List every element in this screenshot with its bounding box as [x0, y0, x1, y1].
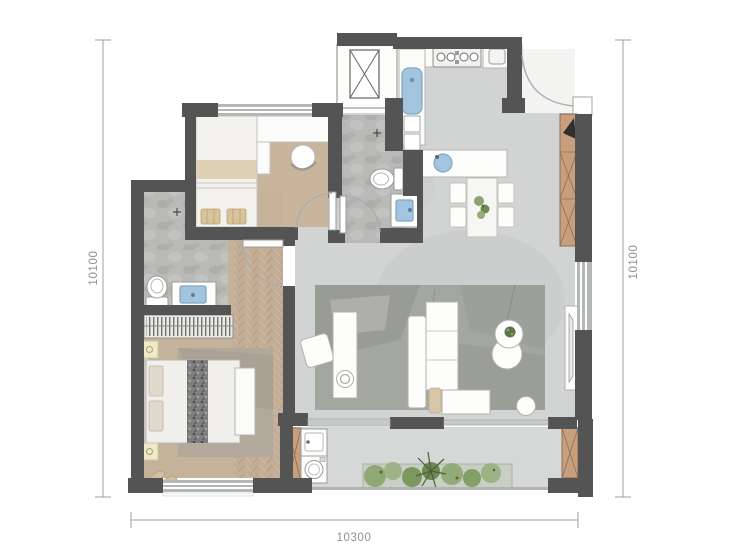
desk-return: [257, 142, 270, 174]
window-sill: [163, 493, 253, 496]
wall-left: [131, 180, 144, 493]
bath-shelf: [404, 116, 420, 132]
wall: [548, 478, 593, 493]
wall: [278, 413, 308, 426]
tv-screen: [569, 314, 573, 382]
sofa-pillow: [429, 388, 441, 413]
desk: [257, 116, 335, 142]
wall: [507, 49, 522, 99]
wall: [393, 37, 522, 49]
vanity-sink: [391, 194, 418, 227]
wall: [283, 286, 295, 416]
master-bed: [144, 356, 255, 446]
guest-bath-door-leaf: [340, 196, 346, 233]
wall: [328, 113, 342, 198]
wall-right: [575, 330, 592, 420]
wall: [253, 478, 312, 493]
single-bed: [196, 116, 257, 227]
wall: [128, 478, 163, 493]
kitchen-floor: [425, 67, 507, 150]
window-north: [218, 104, 312, 116]
dining-chair: [450, 183, 466, 203]
window-east: [577, 262, 592, 330]
bed-blanket: [196, 160, 257, 179]
living-room: [300, 285, 586, 416]
window-south: [163, 480, 253, 492]
pillow: [149, 401, 163, 431]
wall: [548, 417, 577, 429]
bedroom2-door-leaf: [329, 192, 336, 230]
island-faucet: [435, 155, 439, 159]
pillow: [149, 366, 163, 396]
toilet: [370, 168, 403, 190]
wall: [137, 305, 231, 315]
wall: [380, 228, 423, 243]
kitchen-island: [420, 150, 507, 177]
wall-niche: [573, 97, 592, 115]
wall: [283, 230, 295, 246]
bath-shelf: [404, 134, 420, 150]
wall: [337, 33, 397, 46]
table-plant: [505, 327, 516, 338]
pillow: [201, 209, 220, 224]
dim-label-bottom: 10300: [337, 532, 372, 544]
wall: [502, 98, 525, 113]
balcony-slider-sill: [308, 419, 390, 426]
coffee-tables: [492, 320, 523, 369]
bed-runner: [187, 360, 208, 443]
wall-right: [575, 114, 592, 262]
pouf: [517, 397, 536, 416]
dining-chair: [450, 207, 466, 227]
master-vanity: [172, 282, 216, 307]
wall: [185, 103, 196, 232]
pillow: [227, 209, 246, 224]
master-toilet: [146, 276, 168, 306]
floorplan-page: 10100 10100 10300: [0, 0, 740, 555]
side-console: [333, 312, 357, 398]
wall: [390, 417, 444, 429]
bed-bench: [235, 368, 255, 435]
wardrobe: [144, 315, 233, 338]
cooktop: [433, 47, 481, 67]
wall: [185, 227, 298, 240]
wall: [385, 98, 403, 151]
dim-label-left: 10100: [88, 251, 100, 286]
balcony-slider-sill: [444, 420, 548, 425]
laundry-sink: [301, 429, 327, 456]
sink-drain: [410, 78, 414, 82]
dim-label-right: 10100: [628, 245, 640, 280]
kitchen-sink: [402, 68, 422, 114]
master-door-leaf: [243, 240, 283, 247]
dining-chair: [498, 183, 514, 203]
balcony-railing: [312, 487, 560, 490]
floorplan-svg: 10100 10100 10300: [0, 0, 740, 555]
desk-chair: [291, 145, 316, 170]
dining-chair: [498, 207, 514, 227]
